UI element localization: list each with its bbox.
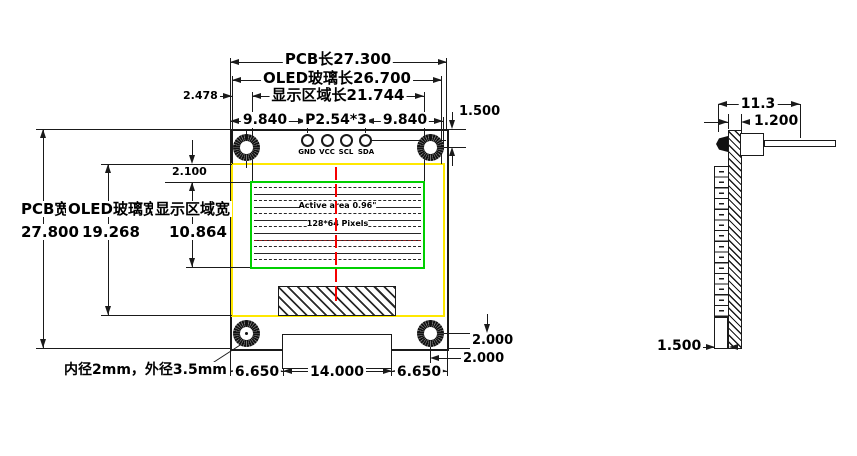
dim-bottom-thickness: 1.500 bbox=[655, 338, 703, 354]
mounting-hole-top-right bbox=[417, 134, 444, 161]
dim-hole-side-offset: 2.000 bbox=[461, 351, 506, 367]
pin-label-sda: SDA bbox=[358, 148, 374, 156]
hole-size-note: 内径2mm，外径3.5mm bbox=[62, 362, 229, 378]
value-pcb-width: 27.800 bbox=[19, 224, 81, 240]
flex-cable-hatch bbox=[278, 286, 396, 316]
extension-line bbox=[36, 129, 230, 130]
hole-bore bbox=[240, 141, 253, 154]
pin-hole-gnd bbox=[301, 134, 314, 147]
side-solder-fillet bbox=[716, 136, 728, 152]
extension-line bbox=[447, 129, 466, 130]
pixel-row-line bbox=[254, 233, 421, 234]
pin-hole-sda bbox=[359, 134, 372, 147]
arrowhead bbox=[223, 93, 232, 99]
side-pcb bbox=[728, 130, 742, 349]
dim-offset: 2.478 bbox=[181, 90, 220, 102]
arrowhead bbox=[189, 258, 195, 267]
label-area-width: 显示区域宽 bbox=[153, 201, 232, 217]
mounting-hole-bottom-right bbox=[417, 320, 444, 347]
arrowhead bbox=[741, 119, 750, 125]
arrowhead bbox=[189, 155, 195, 164]
label-glass-width: OLED玻璃宽 bbox=[66, 201, 160, 217]
pixel-row-line bbox=[254, 253, 421, 254]
mounting-hole-bottom-left bbox=[233, 320, 260, 347]
dim-stem bbox=[452, 156, 453, 166]
arrowhead bbox=[434, 118, 443, 124]
dim-area-length: 显示区域长21.744 bbox=[270, 87, 407, 103]
dim-connector-right: 6.650 bbox=[395, 364, 443, 380]
active-area-label: Active area 0.96" bbox=[299, 201, 377, 210]
dim-pcb-thickness: 1.200 bbox=[752, 113, 800, 129]
dim-connector-width: 14.000 bbox=[308, 364, 366, 380]
extension-line bbox=[165, 182, 251, 183]
dim-hole-bottom-offset: 2.000 bbox=[470, 333, 515, 349]
arrowhead bbox=[105, 306, 111, 315]
arrowhead bbox=[449, 120, 455, 129]
dim-stem bbox=[192, 140, 193, 155]
pin-label-gnd: GND bbox=[298, 148, 315, 156]
hole-bore bbox=[424, 141, 437, 154]
arrowhead bbox=[706, 344, 715, 350]
side-bottom-bar bbox=[714, 317, 728, 349]
value-area-width: 10.864 bbox=[167, 224, 229, 240]
dim-glass-length: OLED玻璃长26.700 bbox=[261, 70, 413, 86]
dim-hole-top-offset: 1.500 bbox=[457, 104, 502, 120]
label-pcb-width: PCB宽 bbox=[19, 201, 71, 217]
oled-dimension-drawing: Active area 0.96" 128*64 Pixels GND VCC … bbox=[0, 0, 857, 456]
arrowhead bbox=[252, 93, 261, 99]
extension-line bbox=[101, 164, 232, 165]
arrowhead bbox=[232, 77, 241, 83]
value-glass-width: 19.268 bbox=[80, 224, 142, 240]
extension-line bbox=[36, 348, 230, 349]
arrowhead bbox=[791, 101, 800, 107]
mounting-hole-top-left bbox=[233, 134, 260, 161]
arrowhead bbox=[189, 182, 195, 191]
pixel-row-line bbox=[254, 259, 421, 260]
dim-pin-pitch: P2.54*3 bbox=[303, 112, 369, 128]
active-area: Active area 0.96" 128*64 Pixels bbox=[250, 181, 425, 269]
arrowhead bbox=[729, 344, 738, 350]
arrowhead bbox=[230, 118, 239, 124]
arrowhead bbox=[230, 59, 239, 65]
side-glass bbox=[714, 166, 729, 318]
red-reference-line bbox=[254, 240, 421, 241]
pixel-row-line bbox=[254, 246, 421, 247]
arrowhead bbox=[718, 101, 727, 107]
dim-connector-left: 6.650 bbox=[233, 364, 281, 380]
dim-pin-left: 9.840 bbox=[241, 112, 289, 128]
arrowhead bbox=[415, 93, 424, 99]
extension-line bbox=[101, 315, 232, 316]
side-header-pin bbox=[764, 140, 836, 147]
side-header-body bbox=[740, 133, 764, 156]
arrowhead bbox=[449, 147, 455, 156]
arrowhead bbox=[719, 119, 728, 125]
pin-hole-scl bbox=[340, 134, 353, 147]
dim-pin-right: 9.840 bbox=[381, 112, 429, 128]
pixel-row-line bbox=[254, 187, 421, 188]
arrowhead bbox=[40, 339, 46, 348]
arrowhead bbox=[430, 355, 439, 361]
pin-hole-vcc bbox=[321, 134, 334, 147]
extension-line bbox=[230, 350, 231, 376]
extension-line bbox=[728, 114, 729, 129]
vertical-centerline-segment bbox=[335, 288, 337, 302]
hole-center-mark bbox=[245, 332, 248, 335]
dim-side-total: 11.3 bbox=[739, 96, 778, 112]
vertical-centerline bbox=[335, 167, 337, 303]
pixel-row-line bbox=[254, 213, 421, 214]
dim-pcb-length: PCB长27.300 bbox=[283, 51, 393, 67]
arrowhead bbox=[40, 129, 46, 138]
arrowhead bbox=[105, 164, 111, 173]
dim-glass-area-gap: 2.100 bbox=[170, 166, 209, 178]
arrowhead bbox=[484, 324, 490, 333]
extension-line bbox=[446, 58, 447, 129]
pin-label-scl: SCL bbox=[339, 148, 354, 156]
hole-bore bbox=[424, 327, 437, 340]
extension-line bbox=[186, 267, 251, 268]
pixel-row-line bbox=[254, 194, 421, 195]
resolution-label: 128*64 Pixels bbox=[307, 219, 369, 228]
extension-line bbox=[447, 350, 448, 376]
extension-line bbox=[741, 114, 742, 132]
pin-label-vcc: VCC bbox=[319, 148, 335, 156]
